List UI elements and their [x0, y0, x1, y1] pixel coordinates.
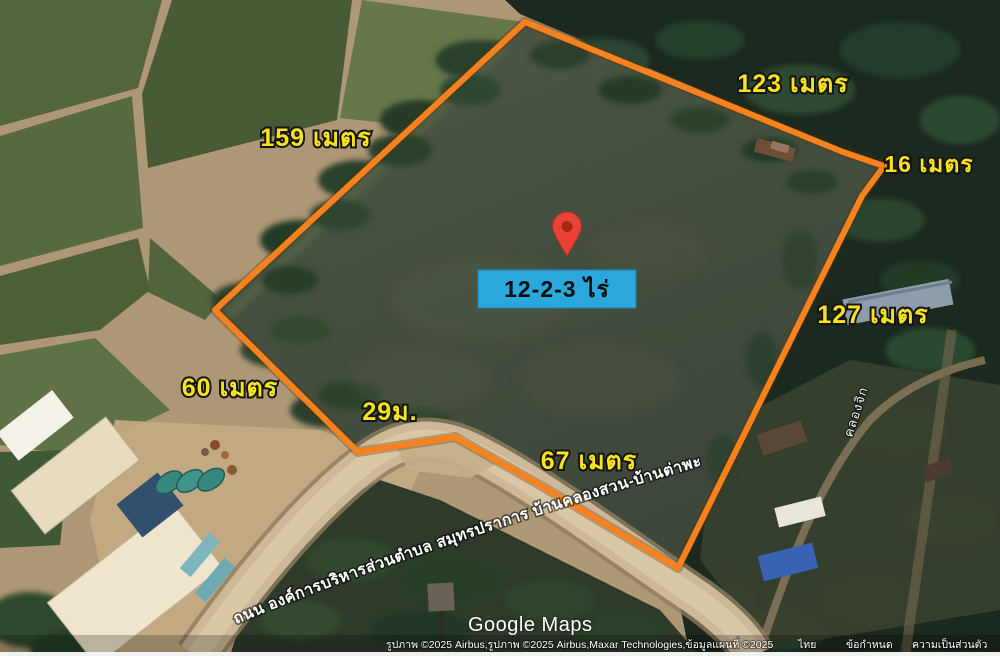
- measurement-label-16: 16 เมตร: [884, 151, 973, 177]
- attribution-terms-link[interactable]: ข้อกำหนด: [846, 639, 893, 651]
- measurement-label-60: 60 เมตร: [182, 374, 278, 402]
- bottom-strip: [0, 652, 1000, 656]
- attribution-privacy-link[interactable]: ความเป็นส่วนตัว: [912, 637, 987, 651]
- google-maps-logo[interactable]: Google Maps: [468, 614, 592, 636]
- area-label: 12-2-3 ไร่: [478, 270, 636, 308]
- attribution-imagery: รูปภาพ ©2025 Airbus,รูปภาพ ©2025 Airbus,…: [386, 637, 773, 651]
- measurement-label-29: 29ม.: [362, 398, 417, 426]
- map-screenshot: ถนน องค์การบริหารส่วนตำบล สมุทรปราการ บ้…: [0, 0, 1000, 656]
- attribution-bar: รูปภาพ ©2025 Airbus,รูปภาพ ©2025 Airbus,…: [0, 635, 1000, 652]
- area-label-text: 12-2-3 ไร่: [504, 275, 610, 302]
- measurement-label-159: 159 เมตร: [260, 124, 371, 152]
- measurement-label-123: 123 เมตร: [737, 70, 848, 98]
- satellite-map-canvas[interactable]: ถนน องค์การบริหารส่วนตำบล สมุทรปราการ บ้…: [0, 0, 1000, 656]
- measurement-label-127: 127 เมตร: [817, 301, 928, 329]
- measurement-label-67: 67 เมตร: [541, 447, 637, 475]
- attribution-region-link[interactable]: ไทย: [797, 638, 816, 651]
